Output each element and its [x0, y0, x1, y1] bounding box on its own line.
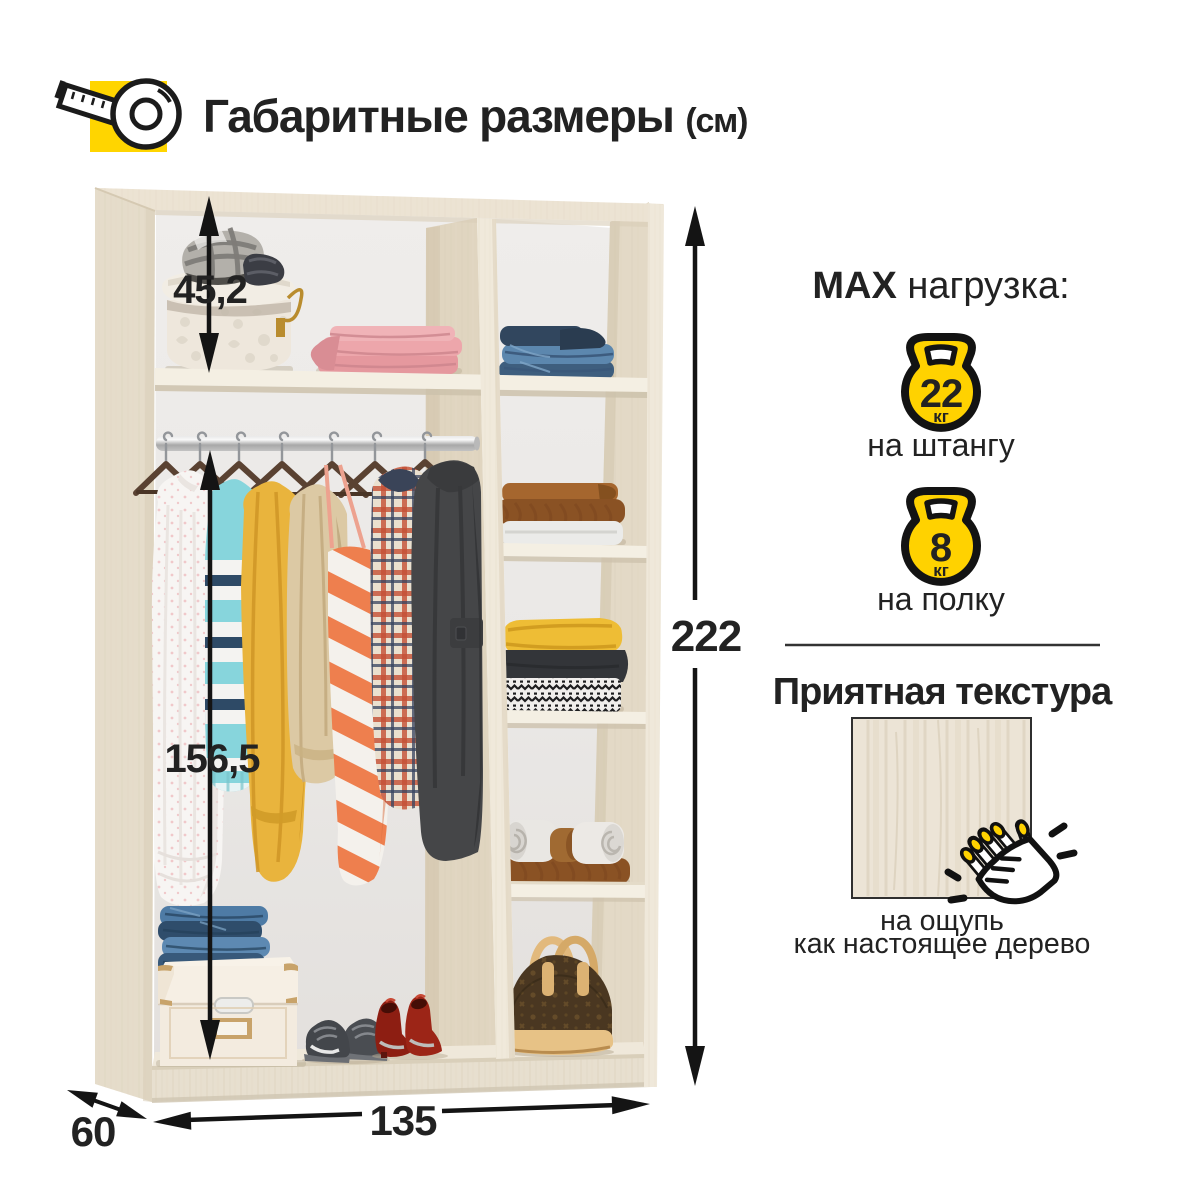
svg-text:кг: кг [933, 407, 949, 426]
svg-text:MAX нагрузка:: MAX нагрузка: [812, 265, 1069, 307]
svg-text:кг: кг [933, 561, 949, 580]
svg-text:Габаритные размеры (см): Габаритные размеры (см) [203, 90, 747, 142]
svg-text:как настоящее дерево: как настоящее дерево [794, 928, 1091, 960]
svg-text:Приятная текстура: Приятная текстура [773, 671, 1113, 713]
svg-text:на штангу: на штангу [867, 427, 1014, 463]
svg-text:60: 60 [71, 1108, 116, 1155]
svg-text:222: 222 [671, 612, 741, 661]
svg-text:на полку: на полку [877, 581, 1005, 617]
svg-text:135: 135 [369, 1097, 437, 1144]
svg-text:45,2: 45,2 [173, 268, 247, 312]
svg-text:156,5: 156,5 [164, 737, 260, 781]
